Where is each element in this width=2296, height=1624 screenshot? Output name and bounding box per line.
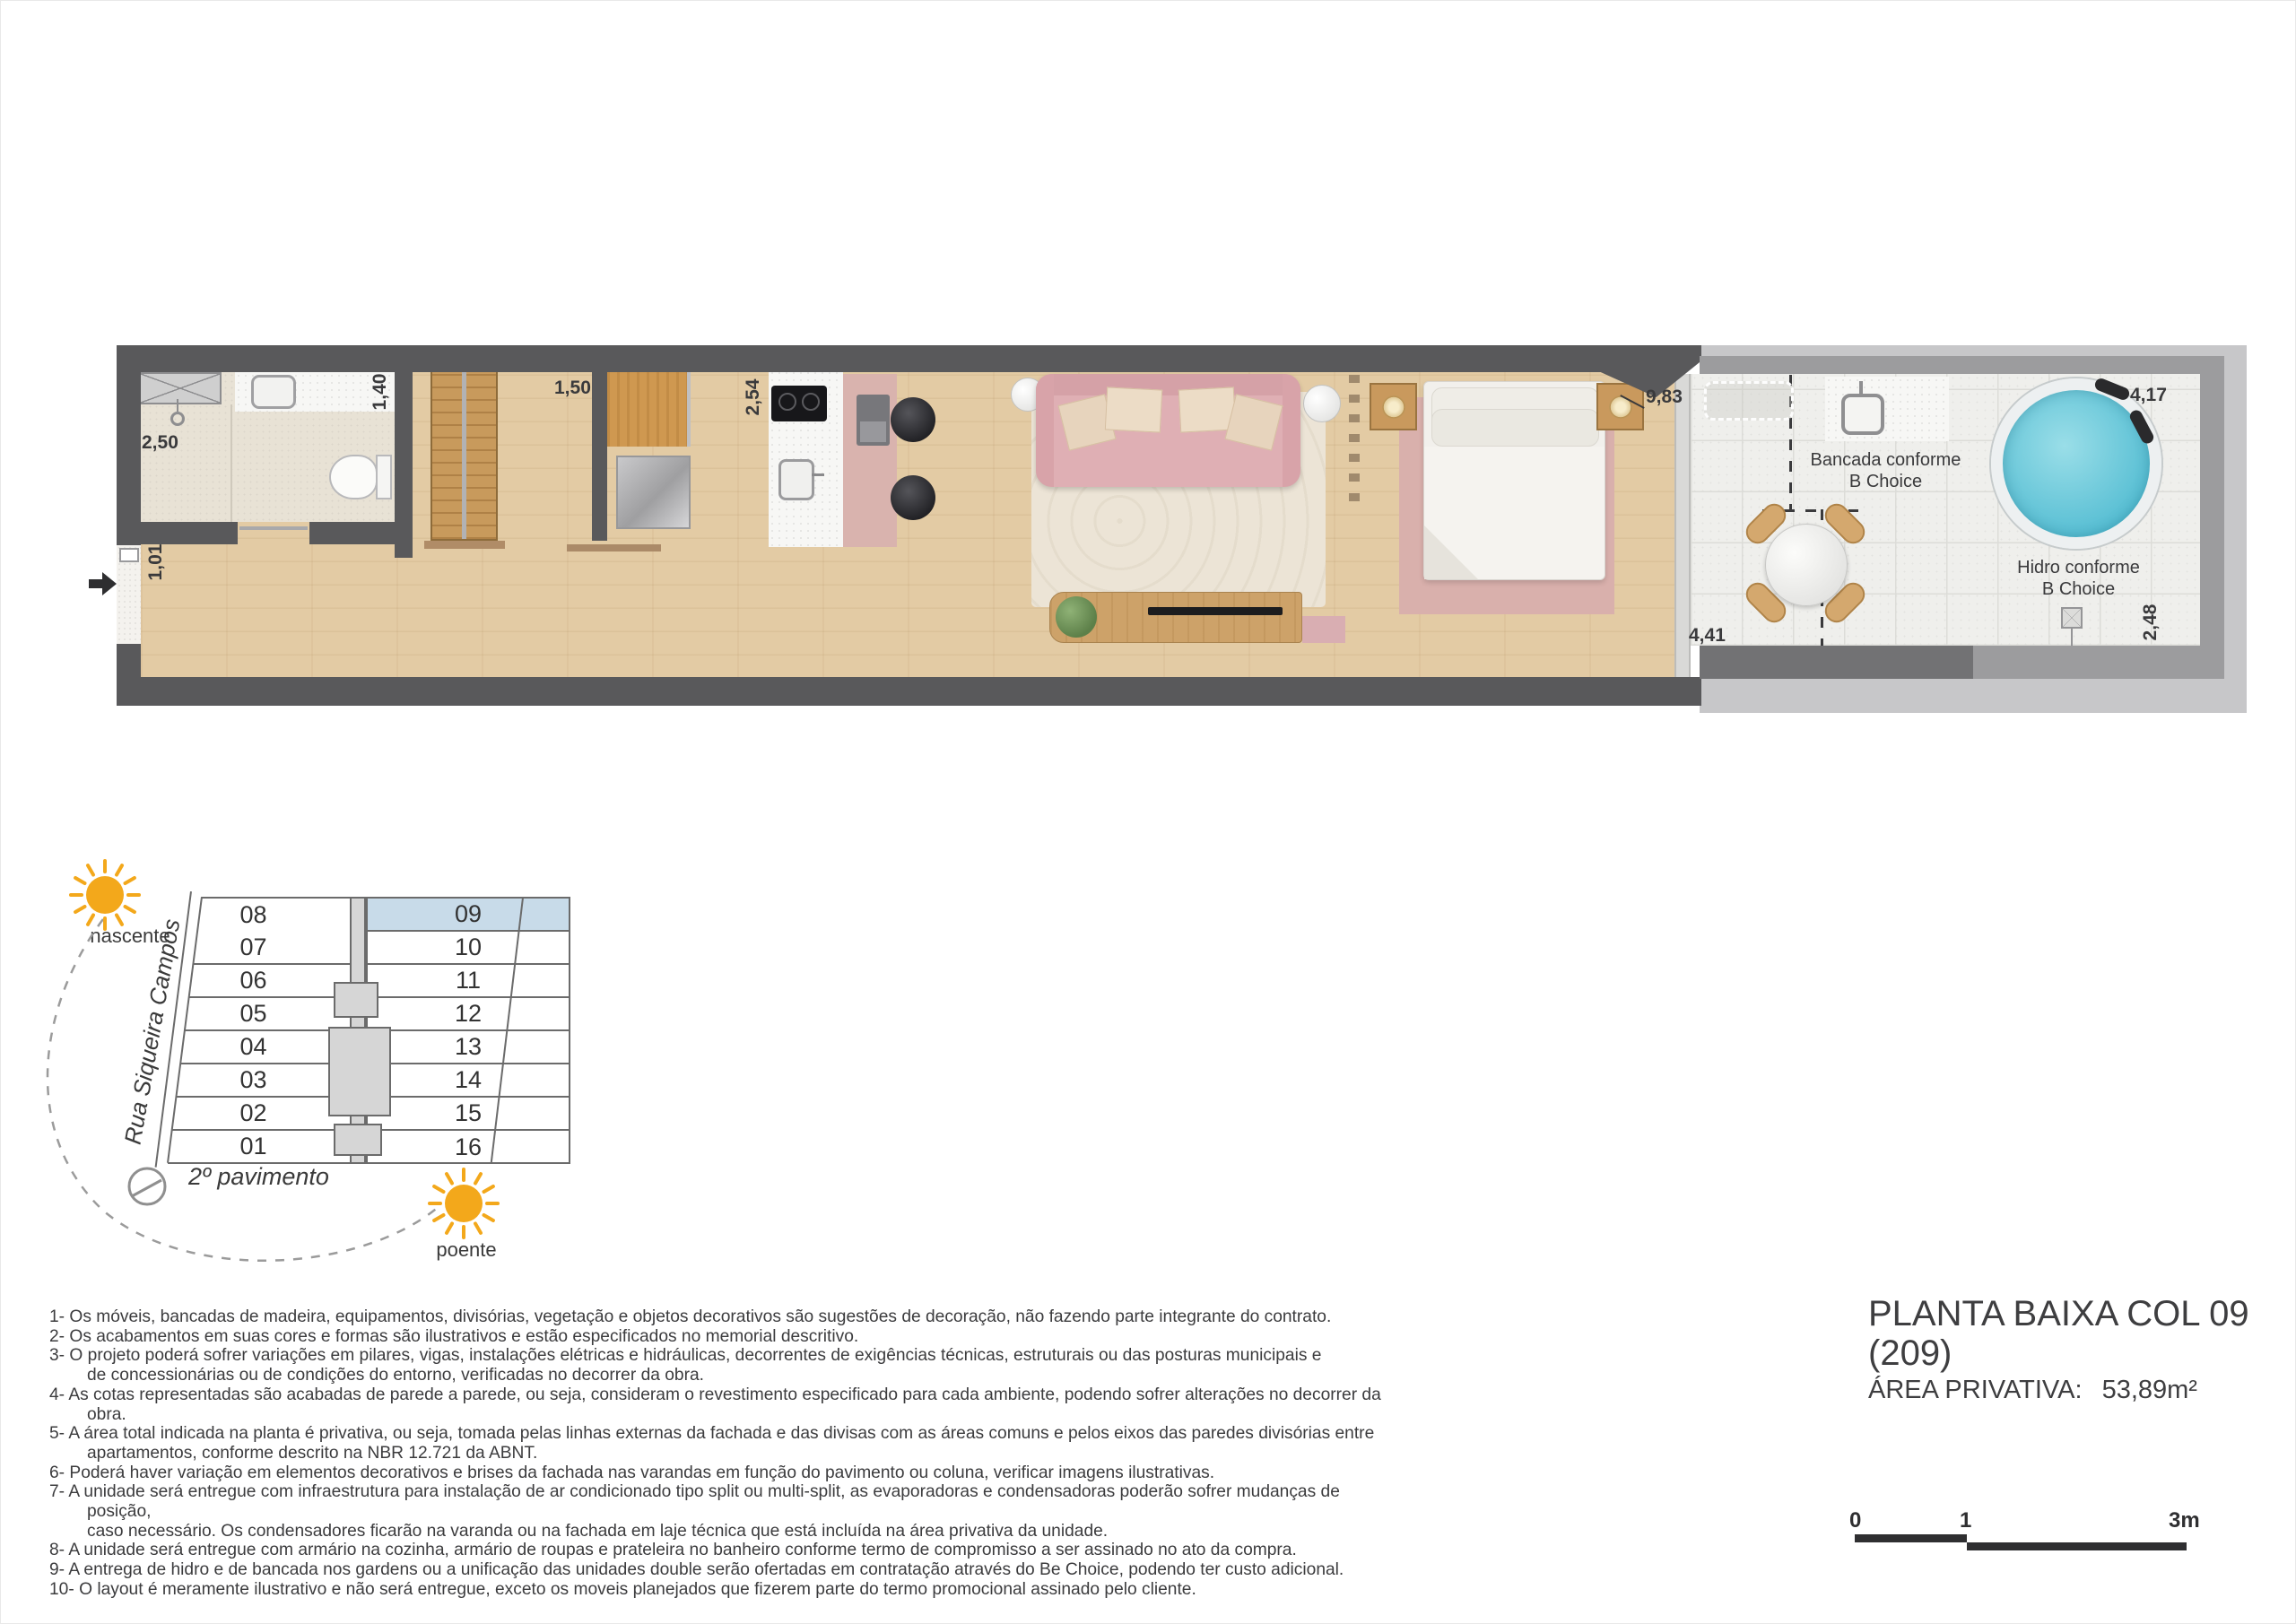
scale-tick-0: 0	[1849, 1508, 1861, 1533]
building-core-block	[334, 1124, 382, 1156]
building-core-block	[334, 982, 378, 1018]
toilet-tank	[376, 455, 392, 499]
wall-bathroom-bottom	[117, 522, 238, 544]
building-core-block	[328, 1027, 391, 1116]
bathroom-divider-line	[230, 404, 232, 522]
hidro-label: Hidro conforme B Choice	[1996, 557, 2161, 600]
dim-counter: 1,40	[370, 368, 391, 416]
dim-closet: 1,50	[554, 378, 591, 399]
garden-wall-outer	[1700, 345, 2247, 356]
page-title: PLANTA BAIXA COL 09	[1868, 1294, 2254, 1333]
cooktop-burner	[802, 393, 820, 411]
keyplan: 08 07 06 05 04 03 02 01 09 10 11 12 13 1…	[108, 883, 628, 1269]
sofa-cushion	[1225, 394, 1283, 451]
title-block: PLANTA BAIXA COL 09 (209) ÁREA PRIVATIVA…	[1868, 1294, 2254, 1405]
lamp-icon	[1382, 395, 1405, 419]
wardrobe-rail	[462, 372, 466, 539]
notes-list: 1- Os móveis, bancadas de madeira, equip…	[49, 1307, 1386, 1600]
cooktop-burner	[778, 393, 796, 411]
cooktop	[771, 386, 827, 421]
garden-wall-outer	[2224, 345, 2247, 713]
page: 2,50 1,40 1,01 1,50 2,54 9,83 4,41 4,17 …	[0, 0, 2296, 1624]
toilet-bowl	[329, 455, 378, 499]
bed	[1423, 381, 1605, 580]
dim-bedroom: 9,83	[1646, 386, 1683, 408]
nightstand	[1596, 383, 1644, 430]
dim-kitchen: 2,54	[743, 373, 764, 421]
garden-wall	[2200, 356, 2224, 679]
unit-number-title: (209)	[1868, 1333, 2254, 1373]
garden-wall-outer	[1700, 679, 2247, 713]
scale-bar-segment-1	[1855, 1534, 1967, 1542]
note-item: 9- A entrega de hidro e de bancada nos g…	[49, 1560, 1386, 1580]
laptop-keyboard	[860, 421, 886, 442]
note-item: 4- As cotas representadas são acabadas d…	[49, 1385, 1386, 1424]
wardrobe-base	[424, 541, 505, 549]
sun-east-icon	[65, 855, 145, 935]
sofa-back	[1036, 374, 1300, 395]
stool	[891, 475, 935, 520]
garden-wall	[1700, 356, 2224, 374]
dim-hall: 1,01	[145, 538, 167, 586]
note-item: 7- A unidade será entregue com infraestr…	[49, 1482, 1386, 1541]
wall	[117, 677, 1701, 706]
bed-pillow	[1431, 409, 1599, 447]
note-item: 10- O layout é meramente ilustrativo e n…	[49, 1580, 1386, 1600]
drain-icon	[2061, 607, 2083, 629]
floor-plan: 2,50 1,40 1,01 1,50 2,54 9,83 4,41 4,17 …	[76, 345, 2247, 715]
private-area-label: ÁREA PRIVATIVA:	[1868, 1376, 2083, 1404]
nightstand	[1370, 383, 1417, 430]
wall	[117, 345, 141, 545]
shower-tray	[139, 372, 222, 404]
equipment-reserve-dashed	[1704, 381, 1794, 421]
sofa-cushion	[1105, 386, 1162, 432]
note-item: 8- A unidade será entregue com armário n…	[49, 1541, 1386, 1560]
note-item: 2- Os acabamentos em suas cores e formas…	[49, 1327, 1386, 1347]
dim-garden-bottom: 4,41	[1689, 625, 1726, 647]
note-item: 3- O projeto poderá sofrer variações em …	[49, 1346, 1386, 1385]
scale-tick-1: 1	[1960, 1508, 1971, 1533]
garden-wall	[1700, 646, 1973, 679]
service-cabinet	[607, 370, 691, 447]
kitchen-faucet	[812, 473, 824, 476]
bathroom-door-leaf	[239, 526, 308, 530]
sofa	[1036, 374, 1300, 487]
wall	[117, 345, 1674, 372]
scale-tick-3m: 3m	[2169, 1508, 2200, 1533]
laptop	[857, 395, 890, 446]
note-item: 1- Os móveis, bancadas de madeira, equip…	[49, 1307, 1386, 1327]
dim-garden-right: 2,48	[2140, 598, 2161, 647]
plant	[1056, 596, 1097, 638]
wall-bathroom-bottom	[309, 522, 413, 544]
bathroom-sink	[251, 375, 296, 409]
note-item: 5- A área total indicada na planta é pri…	[49, 1424, 1386, 1463]
garden-faucet	[1859, 381, 1863, 395]
sofa-arm	[1283, 374, 1300, 487]
threshold-strip	[567, 544, 661, 551]
entrance-arrow-icon	[89, 569, 117, 598]
bancada-label: Bancada conforme B Choice	[1803, 449, 1969, 492]
garden-wall	[1973, 646, 2224, 679]
stool	[891, 397, 935, 442]
scale-bar-segment-2	[1967, 1542, 2187, 1550]
wardrobe	[430, 370, 498, 541]
partition-dashed-line	[1349, 375, 1360, 511]
dim-garden-top: 4,17	[2130, 385, 2167, 406]
garden-sink	[1841, 394, 1884, 435]
dining-table	[1765, 524, 1848, 606]
tv	[1148, 607, 1283, 615]
bench	[1302, 616, 1345, 643]
dim-bath: 2,50	[142, 432, 178, 454]
side-table	[1303, 385, 1341, 422]
sun-west-icon	[423, 1163, 504, 1244]
kitchen-sink	[778, 459, 814, 500]
entry-door-leaf	[119, 548, 139, 562]
bed-duvet-fold	[1424, 525, 1478, 579]
wall-stub	[592, 345, 607, 541]
note-item: 6- Poderá haver variação em elementos de…	[49, 1463, 1386, 1483]
private-area-value: 53,89m²	[2102, 1376, 2197, 1404]
drain-stem	[2071, 629, 2073, 647]
private-area-line: ÁREA PRIVATIVA: 53,89m²	[1868, 1376, 2254, 1405]
washer	[616, 456, 691, 529]
toilet	[329, 455, 392, 499]
sofa-arm	[1036, 374, 1054, 487]
shower-head-stem	[177, 399, 178, 412]
shower-head-icon	[170, 412, 185, 426]
